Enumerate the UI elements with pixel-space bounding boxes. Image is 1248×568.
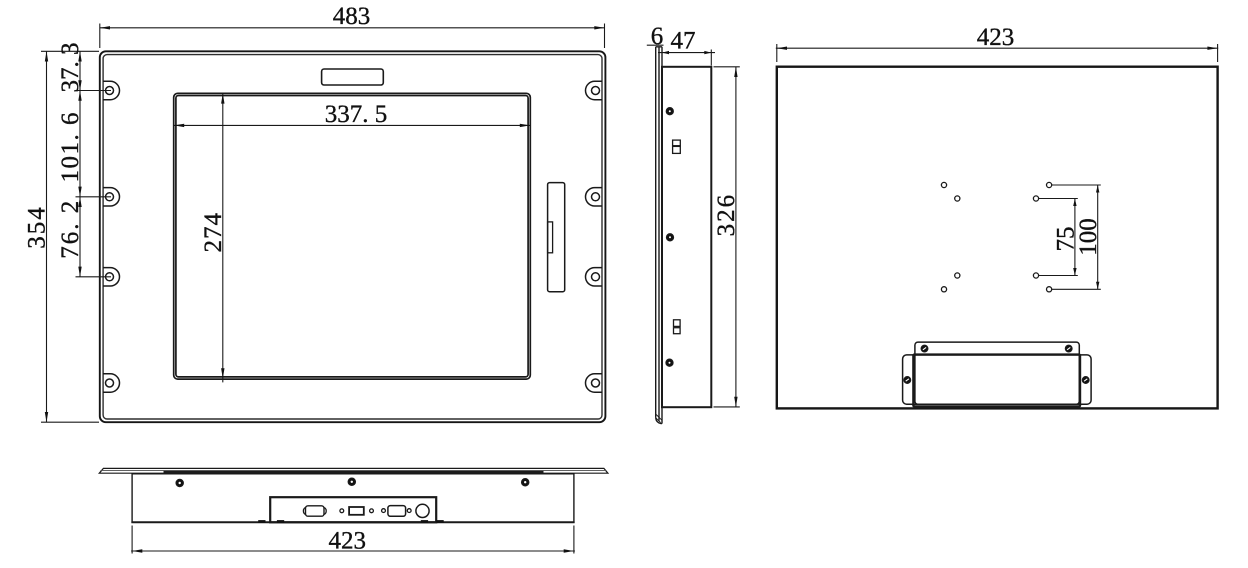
- svg-text:47: 47: [671, 28, 696, 55]
- svg-text:6: 6: [651, 23, 664, 50]
- svg-text:423: 423: [977, 24, 1015, 51]
- svg-text:337. 5: 337. 5: [325, 101, 388, 128]
- svg-text:423: 423: [329, 528, 367, 555]
- svg-text:100: 100: [1075, 218, 1102, 256]
- svg-text:483: 483: [333, 3, 371, 30]
- svg-text:101. 6: 101. 6: [57, 111, 84, 183]
- svg-text:326: 326: [713, 193, 740, 237]
- svg-text:37. 3: 37. 3: [57, 43, 84, 93]
- svg-text:354: 354: [23, 205, 50, 249]
- svg-text:274: 274: [200, 212, 227, 253]
- svg-text:76. 2: 76. 2: [57, 199, 84, 259]
